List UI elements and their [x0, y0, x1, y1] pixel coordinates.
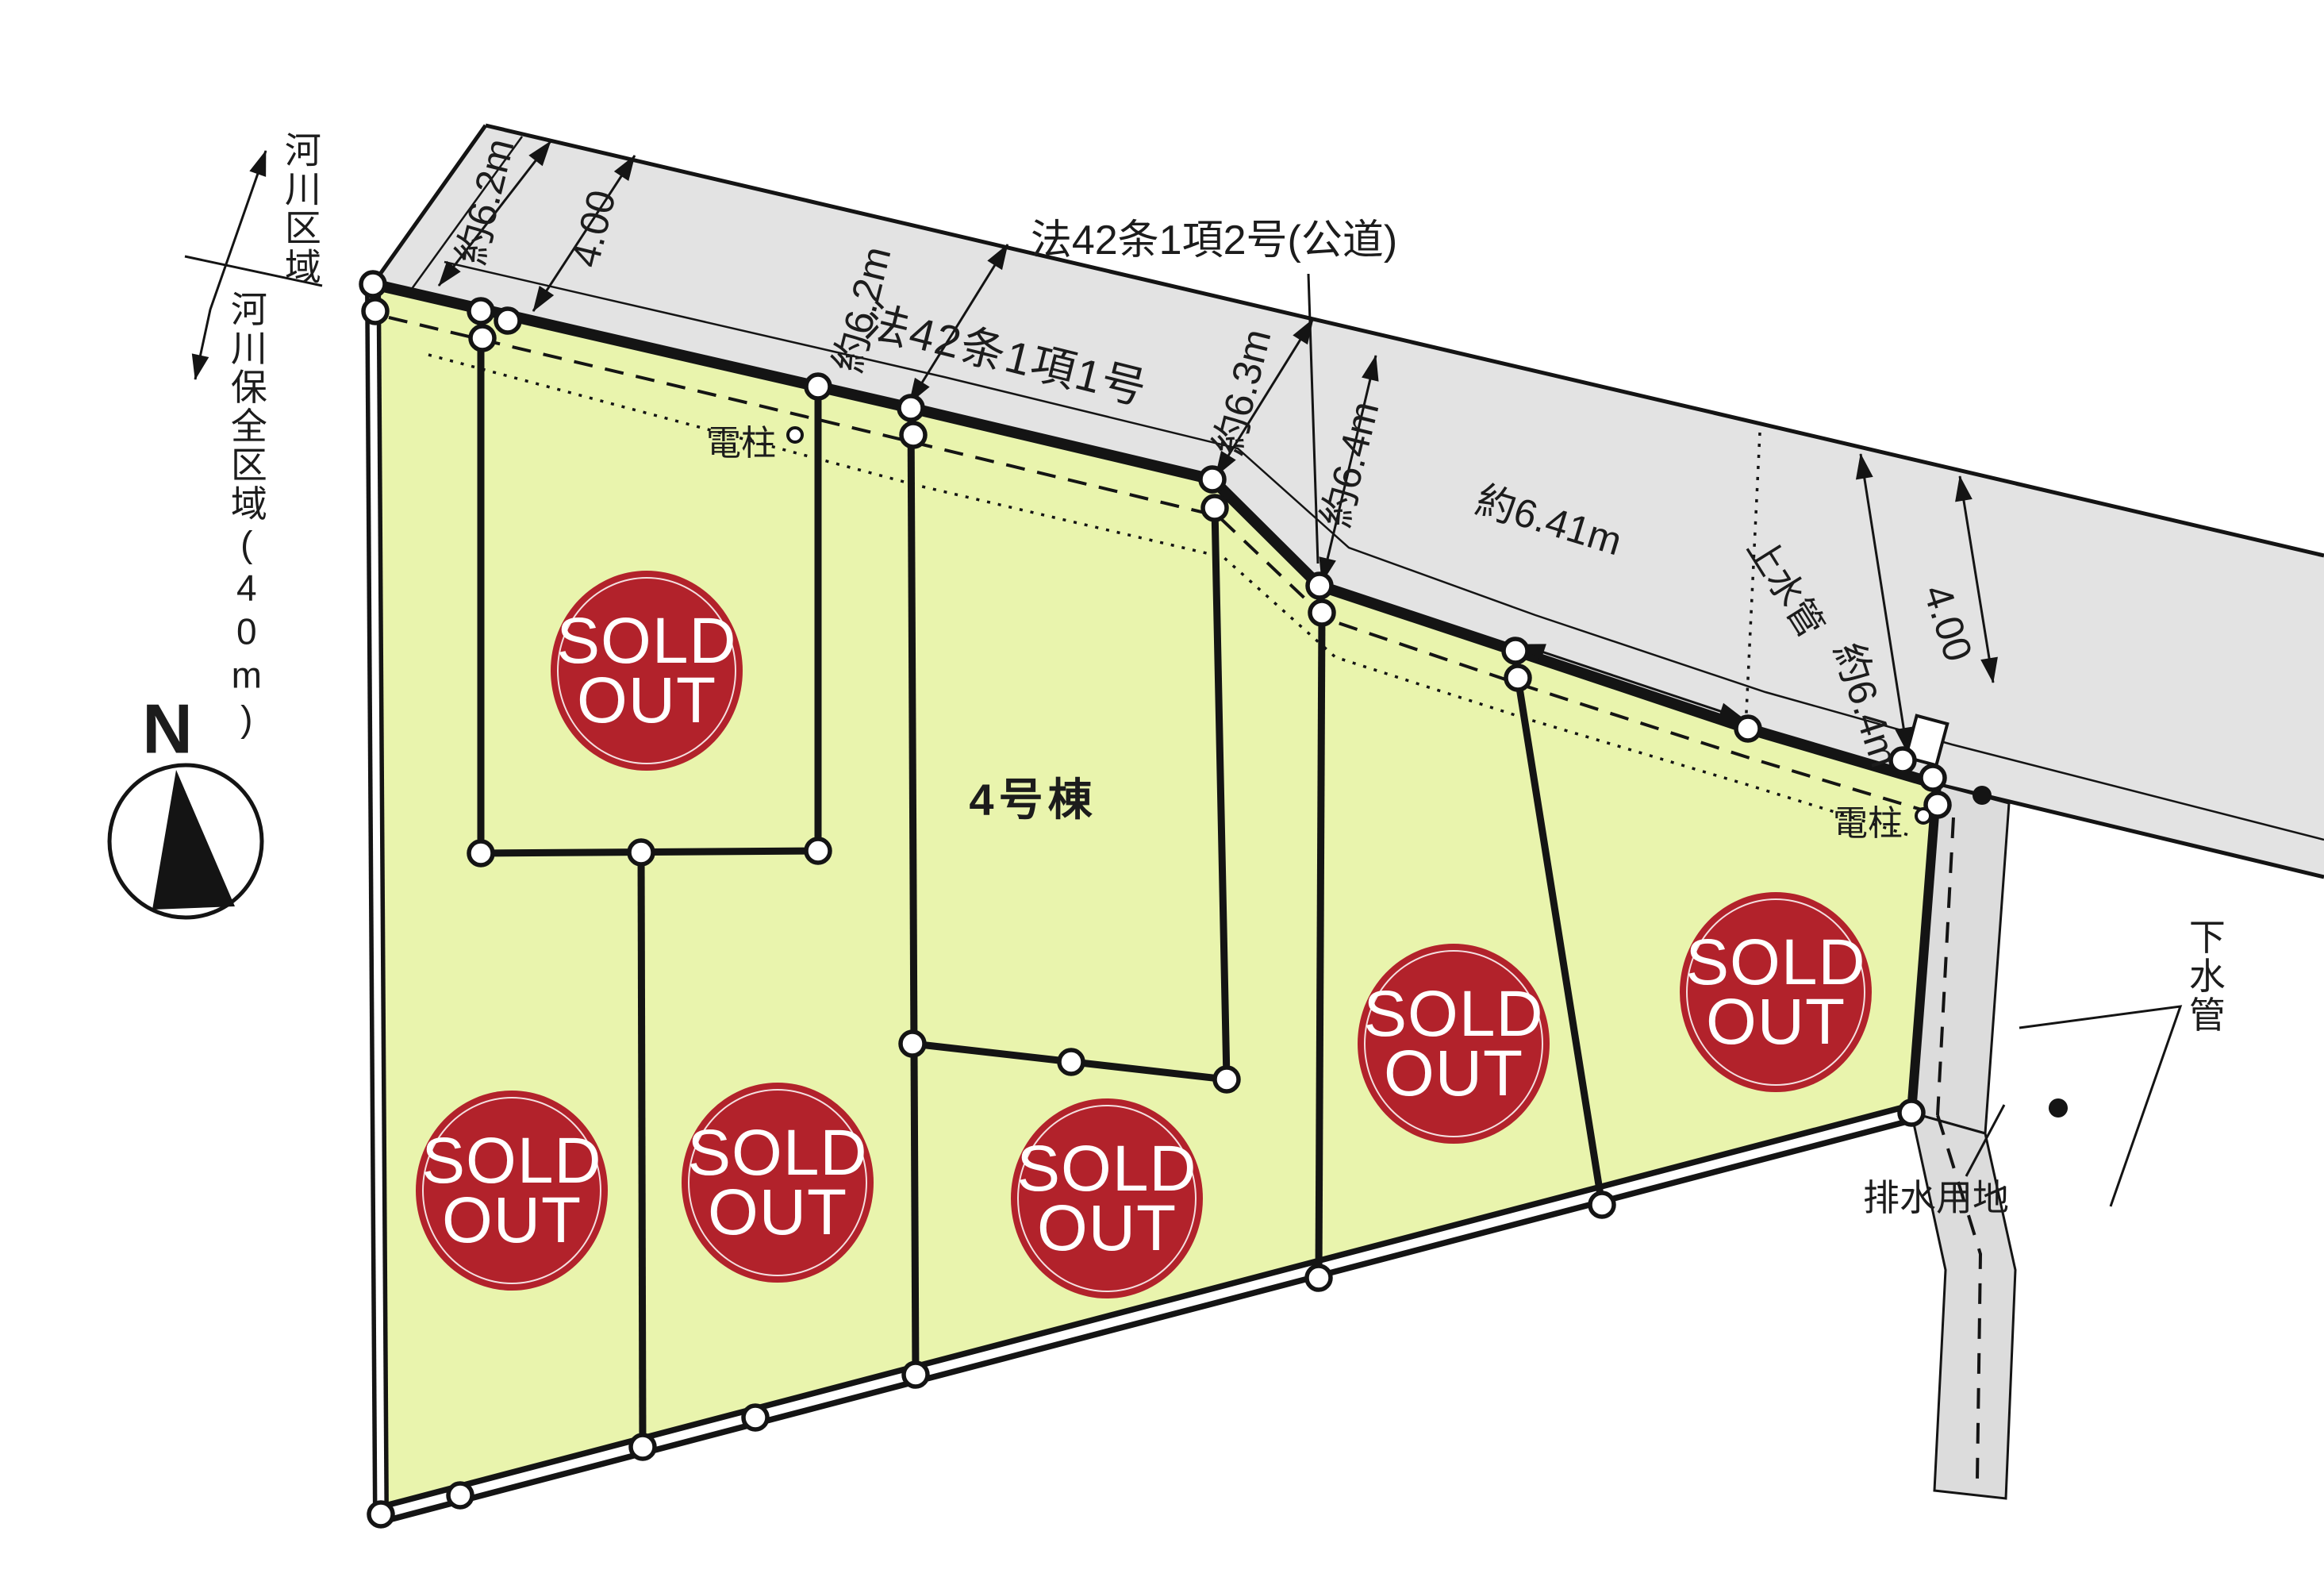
badge-ring [1364, 950, 1543, 1137]
boundary-node [1307, 1266, 1331, 1290]
north-label: N [142, 691, 193, 766]
utility-pole-marker-right [1916, 809, 1930, 823]
boundary-node [471, 326, 494, 350]
sold-out-badge: SOLD OUT [1680, 892, 1872, 1092]
boundary-node [1504, 639, 1527, 663]
site-plan: 河川区域 河川保全区域(40m) 約6.2m 4.00 約6.2m 約6.3m … [0, 0, 2324, 1585]
boundary-node [361, 272, 385, 296]
boundary-node [901, 423, 925, 447]
boundary-node [1200, 467, 1224, 491]
divider-mid-right [1319, 613, 1322, 1278]
utility-pole-left-label: 電柱 [706, 425, 776, 463]
badge-ring [1686, 898, 1865, 1086]
boundary-node [1506, 666, 1530, 690]
boundary-node [904, 1363, 928, 1387]
boundary-node [899, 396, 923, 420]
compass-icon [109, 765, 262, 918]
sold-out-badge: SOLD OUT [416, 1091, 608, 1291]
boundary-node [363, 299, 387, 323]
boundary-node [1308, 574, 1331, 598]
available-lot-label: 4号棟 [969, 776, 1097, 824]
sewer-leader-lines [2019, 1006, 2180, 1206]
boundary-node [1590, 1193, 1614, 1217]
sold-out-badge: SOLD OUT [1358, 944, 1550, 1144]
lot4-left-line [911, 408, 916, 1375]
drainage-strip-lower [1911, 1113, 2015, 1498]
boundary-node [369, 1502, 393, 1526]
badge-ring [422, 1097, 601, 1284]
sold-out-badge: SOLD OUT [1011, 1098, 1203, 1298]
boundary-node [448, 1483, 472, 1507]
sold-out-badge: SOLD OUT [551, 571, 743, 771]
river-area-label: 河川区域 [280, 131, 320, 287]
badge-ring [1017, 1105, 1197, 1292]
sewer-pipe-label: 下水管 [2184, 918, 2224, 1035]
badge-ring [557, 577, 736, 764]
boundary-node [1203, 496, 1227, 520]
boundary-node [1900, 1101, 1923, 1125]
boundary-node [496, 309, 520, 333]
boundary-node [469, 841, 493, 865]
boundary-node [743, 1406, 767, 1429]
survey-dot [1973, 786, 1992, 805]
boundary-node [1310, 601, 1334, 625]
boundary-node [901, 1032, 924, 1056]
boundary-node [1736, 717, 1760, 741]
boundary-node [806, 839, 830, 863]
survey-dot [2049, 1098, 2068, 1118]
boundary-node [631, 1435, 655, 1459]
boundary-node [1059, 1050, 1083, 1074]
boundary-node [1921, 766, 1945, 790]
utility-pole-marker-left [788, 428, 802, 442]
drainage-land-label: 排水用地 [1863, 1179, 2009, 1218]
utility-pole-right-label: 電柱 [1833, 805, 1903, 843]
river-preservation-label: 河川保全区域(40m) [226, 290, 266, 742]
boundary-node [806, 375, 830, 398]
boundary-node [469, 299, 493, 323]
boundary-node [1215, 1068, 1239, 1091]
road-article42-1-2-label: 法42条1項2号(公道) [1031, 218, 1397, 263]
sold-out-badge: SOLD OUT [682, 1083, 874, 1283]
boundary-node [629, 841, 653, 864]
badge-ring [688, 1089, 867, 1276]
divider-bottom-left [641, 852, 643, 1447]
